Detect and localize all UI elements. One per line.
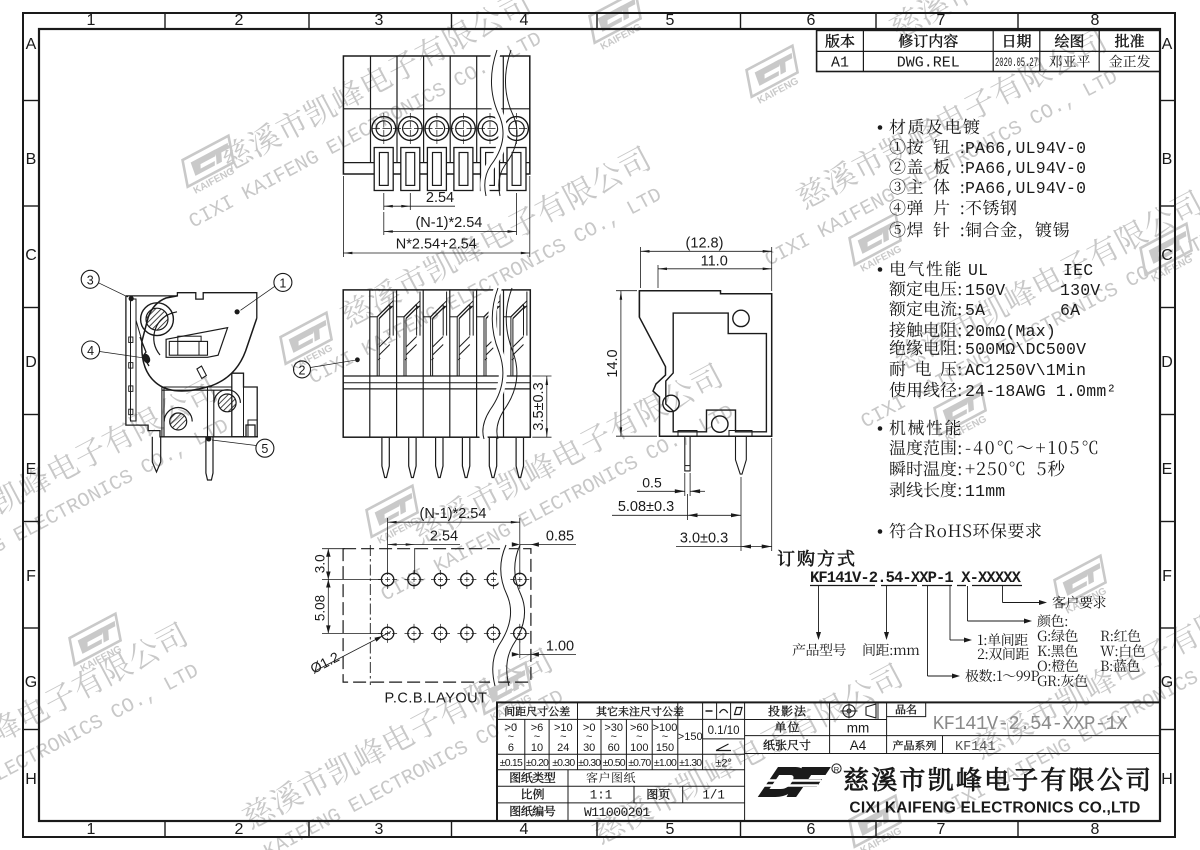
svg-text:KF141: KF141 (955, 740, 996, 755)
svg-text:G: G (1161, 674, 1173, 691)
svg-text:A1: A1 (831, 55, 849, 72)
svg-text:150: 150 (656, 742, 674, 754)
svg-text:500MΩ\DC500V: 500MΩ\DC500V (965, 340, 1086, 359)
svg-text:4: 4 (520, 12, 529, 29)
svg-text:10: 10 (531, 742, 543, 754)
svg-text:8: 8 (1091, 12, 1100, 29)
svg-text:B: B (26, 151, 37, 168)
svg-text:W11000201: W11000201 (584, 805, 650, 820)
svg-text:5: 5 (666, 821, 675, 838)
svg-text:1:1: 1:1 (590, 789, 613, 803)
svg-text:3.0: 3.0 (313, 554, 328, 573)
svg-text:C: C (25, 247, 37, 264)
svg-text:E: E (1162, 461, 1173, 478)
svg-text:3: 3 (375, 821, 384, 838)
svg-text:G: G (25, 674, 37, 691)
svg-text:1/1: 1/1 (702, 789, 725, 803)
svg-text:60: 60 (608, 742, 620, 754)
svg-text:1.00: 1.00 (546, 638, 574, 654)
svg-text:11mm: 11mm (965, 482, 1005, 501)
svg-text:4: 4 (87, 344, 94, 358)
svg-text:20mΩ(Max): 20mΩ(Max) (965, 322, 1056, 341)
svg-text:PA66,UL94V-0: PA66,UL94V-0 (965, 179, 1086, 198)
svg-text:(N-1)*2.54: (N-1)*2.54 (420, 506, 487, 522)
svg-text:KF141V-2.54-XXP-1 X-XXXXX: KF141V-2.54-XXP-1 X-XXXXX (810, 569, 1022, 587)
svg-text:PA66,UL94V-0: PA66,UL94V-0 (965, 159, 1086, 178)
svg-text:C: C (1161, 247, 1173, 264)
svg-text:3.5±0.3: 3.5±0.3 (531, 382, 547, 430)
svg-text:D: D (25, 354, 37, 371)
svg-text:5: 5 (666, 12, 675, 29)
svg-text:2.54: 2.54 (426, 190, 454, 206)
svg-text:±0.15: ±0.15 (500, 757, 523, 769)
svg-text:±1.30: ±1.30 (679, 757, 702, 769)
svg-text:8: 8 (1091, 821, 1100, 838)
svg-text:150V: 150V (965, 281, 1005, 300)
svg-text:24-18AWG 1.0mm²: 24-18AWG 1.0mm² (965, 382, 1117, 401)
svg-text:B: B (1162, 151, 1173, 168)
svg-text:mm: mm (847, 721, 870, 736)
svg-text:24: 24 (557, 742, 569, 754)
svg-text:AC1250V\1Min: AC1250V\1Min (965, 361, 1086, 380)
svg-text:5: 5 (261, 442, 268, 456)
svg-text:A: A (1162, 36, 1173, 53)
svg-text:3.0±0.3: 3.0±0.3 (680, 531, 728, 547)
svg-text:KF141V-2.54-XXP-1X: KF141V-2.54-XXP-1X (933, 713, 1129, 735)
svg-text:5.08: 5.08 (313, 595, 328, 621)
svg-text:±1.00: ±1.00 (654, 757, 677, 769)
svg-text:A: A (26, 36, 37, 53)
svg-text:6: 6 (508, 742, 514, 754)
svg-text:PA66,UL94V-0: PA66,UL94V-0 (965, 139, 1086, 158)
svg-text:130V: 130V (1060, 281, 1100, 300)
svg-text:R: R (834, 765, 840, 774)
svg-text:H: H (25, 771, 37, 788)
svg-text:3: 3 (87, 273, 94, 287)
svg-text:CIXI KAIFENG ELECTRONICS CO.,L: CIXI KAIFENG ELECTRONICS CO.,LTD (849, 800, 1140, 817)
svg-text:>150: >150 (678, 731, 703, 743)
svg-text:5.08±0.3: 5.08±0.3 (618, 499, 674, 515)
svg-text:0.5: 0.5 (642, 475, 662, 491)
svg-text:7: 7 (937, 821, 946, 838)
svg-text:F: F (1162, 568, 1172, 585)
svg-text:±0.30: ±0.30 (578, 757, 601, 769)
svg-text:0.1/10: 0.1/10 (708, 725, 740, 737)
svg-text:DWG.REL: DWG.REL (897, 55, 960, 72)
svg-text:5A: 5A (965, 301, 985, 320)
svg-text:11.0: 11.0 (701, 253, 728, 269)
svg-text:UL: UL (968, 261, 988, 280)
svg-text:±0.20: ±0.20 (526, 757, 549, 769)
svg-text:2: 2 (235, 821, 244, 838)
svg-text:±2°: ±2° (715, 758, 732, 770)
svg-text:4: 4 (520, 821, 529, 838)
svg-text:100: 100 (630, 742, 648, 754)
svg-text:1: 1 (87, 821, 96, 838)
svg-text:±0.70: ±0.70 (628, 757, 651, 769)
svg-text:F: F (26, 568, 36, 585)
svg-text:1: 1 (87, 12, 96, 29)
svg-text:±0.30: ±0.30 (552, 757, 575, 769)
svg-text:E: E (26, 461, 37, 478)
svg-text:IEC: IEC (1063, 261, 1093, 280)
svg-text:6: 6 (807, 821, 816, 838)
svg-text:6A: 6A (1060, 301, 1080, 320)
svg-text:6: 6 (807, 12, 816, 29)
svg-text:2: 2 (235, 12, 244, 29)
svg-text:30: 30 (583, 742, 595, 754)
svg-text:N*2.54+2.54: N*2.54+2.54 (396, 237, 477, 253)
svg-text:3: 3 (375, 12, 384, 29)
svg-text:0.85: 0.85 (546, 529, 574, 545)
svg-text:±0.50: ±0.50 (603, 757, 626, 769)
svg-text:D: D (1161, 354, 1173, 371)
svg-text:P.C.B.LAYOUT: P.C.B.LAYOUT (385, 691, 488, 707)
svg-text:2.54: 2.54 (430, 529, 458, 545)
svg-text:A4: A4 (850, 738, 867, 753)
svg-text:2020.05.27: 2020.05.27 (995, 56, 1038, 70)
svg-text:1: 1 (279, 276, 286, 290)
svg-text:14.0: 14.0 (605, 349, 621, 377)
svg-text:H: H (1161, 771, 1173, 788)
svg-text:(12.8): (12.8) (686, 235, 724, 251)
svg-text:(N-1)*2.54: (N-1)*2.54 (415, 215, 482, 231)
svg-text:7: 7 (937, 12, 946, 29)
svg-text:2: 2 (299, 363, 306, 377)
